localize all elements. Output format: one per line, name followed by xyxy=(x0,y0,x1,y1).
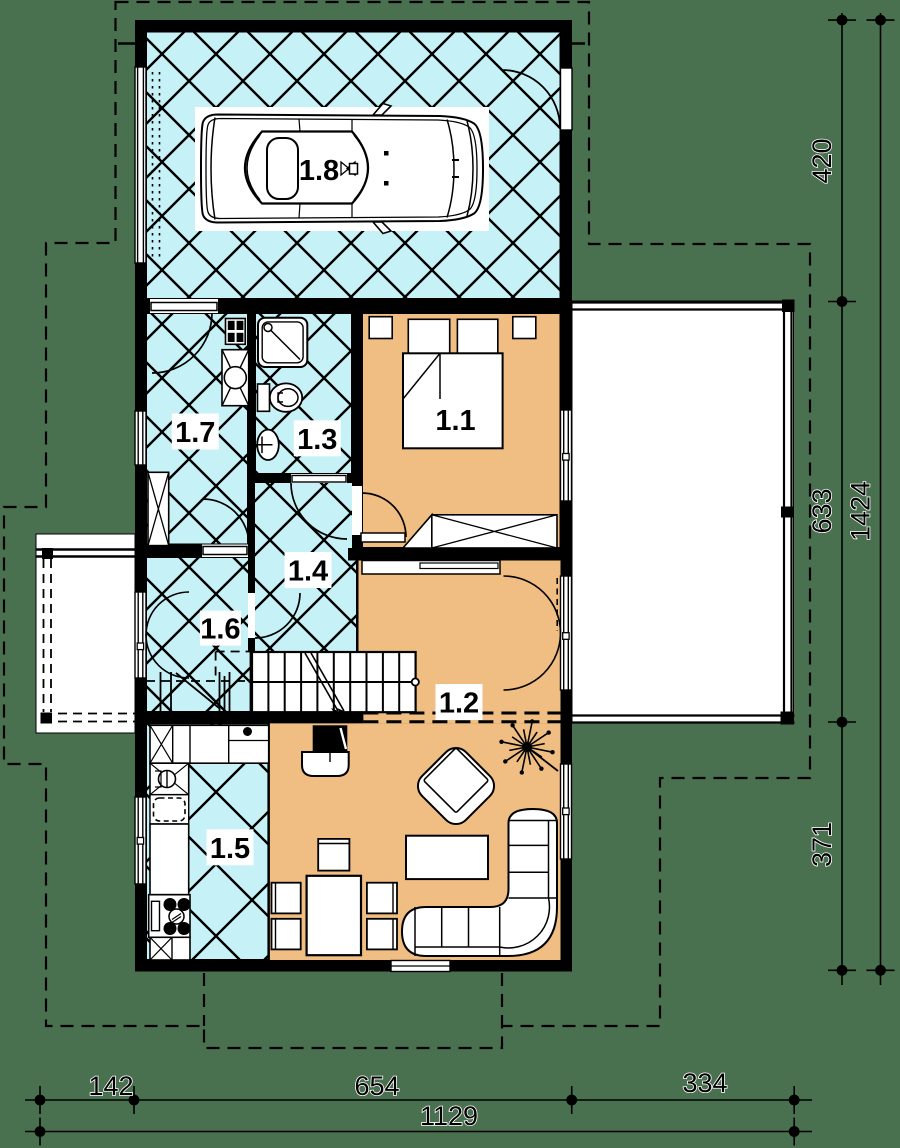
svg-text:1.8: 1.8 xyxy=(299,155,339,187)
svg-text:1.5: 1.5 xyxy=(210,833,250,865)
svg-text:1.4: 1.4 xyxy=(288,556,328,588)
svg-text:1.2: 1.2 xyxy=(439,688,479,720)
svg-text:1.7: 1.7 xyxy=(175,417,215,449)
svg-text:420: 420 xyxy=(807,138,837,183)
svg-text:142: 142 xyxy=(89,1071,134,1101)
svg-text:371: 371 xyxy=(807,822,837,867)
svg-text:654: 654 xyxy=(355,1071,400,1101)
svg-text:1.3: 1.3 xyxy=(297,424,337,456)
svg-text:1424: 1424 xyxy=(846,481,876,541)
svg-text:334: 334 xyxy=(683,1068,728,1098)
svg-text:1129: 1129 xyxy=(420,1101,478,1131)
svg-text:1.1: 1.1 xyxy=(435,405,475,437)
svg-text:633: 633 xyxy=(807,488,837,533)
svg-text:1.6: 1.6 xyxy=(200,614,240,646)
